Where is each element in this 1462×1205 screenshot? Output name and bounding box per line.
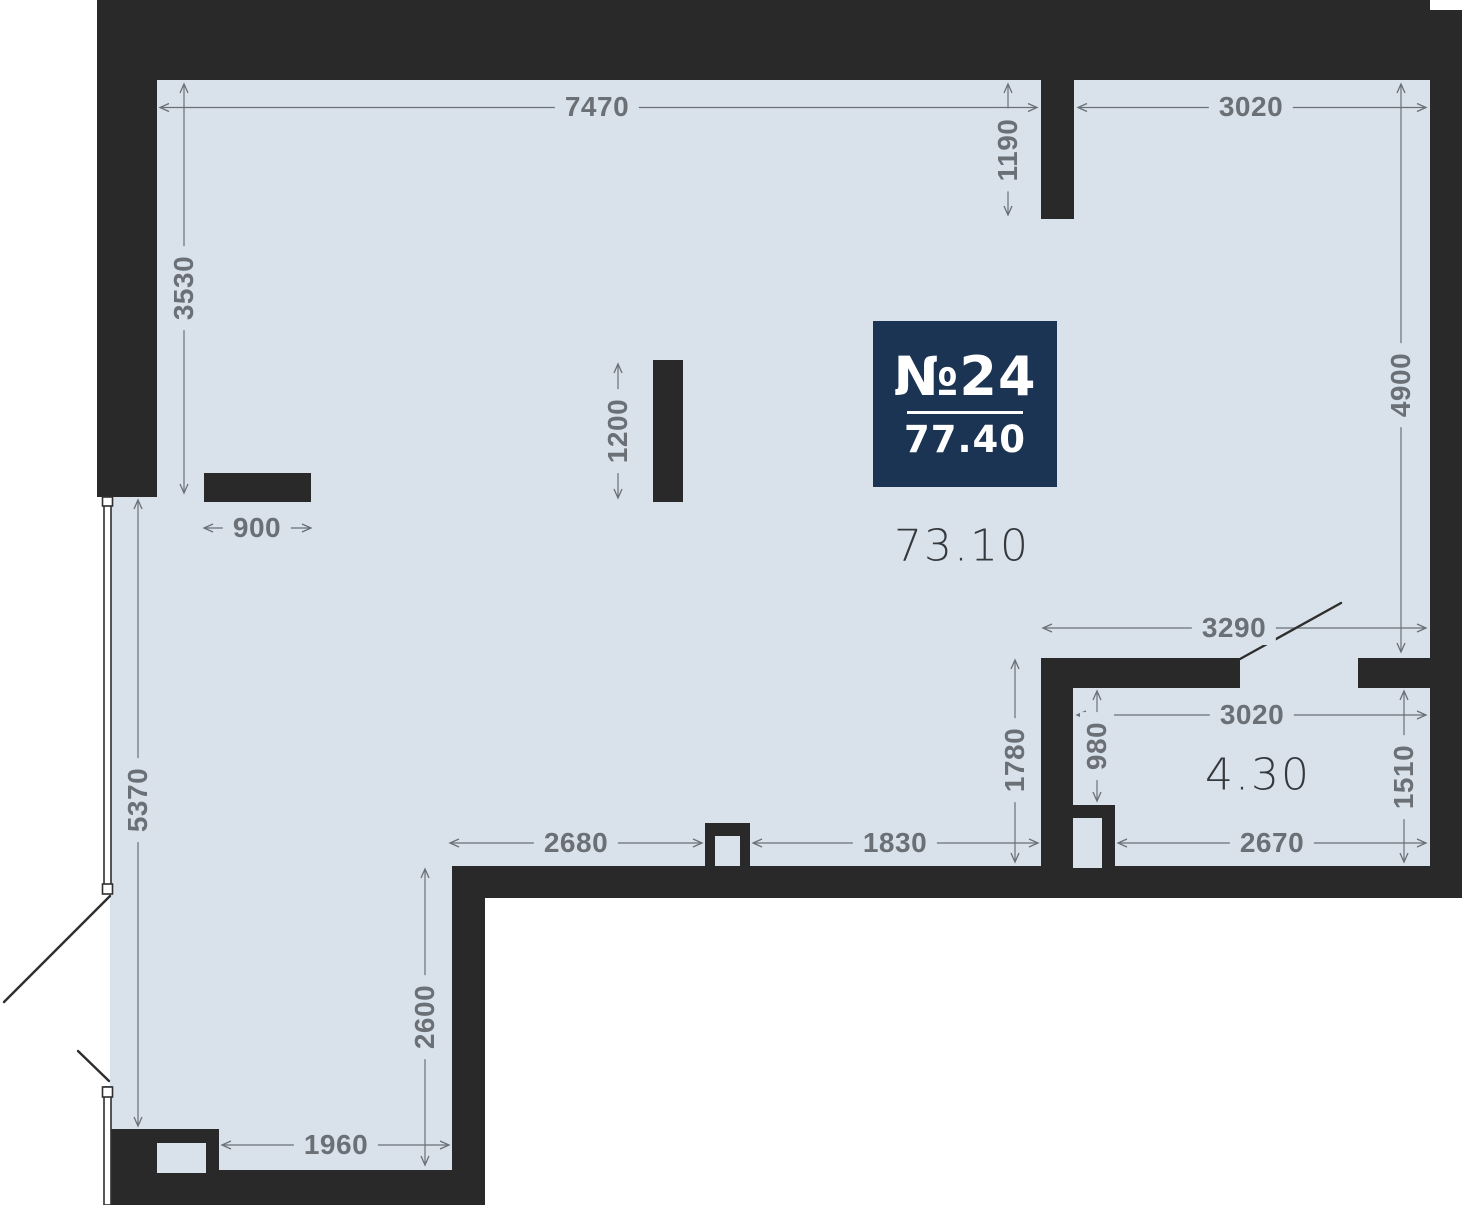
dim-leg-height: 2600 [408, 975, 442, 1059]
wall-bottom-main [452, 866, 1462, 898]
dim-left-upper-height: 3530 [167, 246, 201, 330]
wall-leg-right [452, 866, 485, 1205]
wall-leg-bottom [219, 1170, 485, 1205]
balcony-area-label: 4.30 [1205, 750, 1311, 801]
dim-partition-length: 1200 [601, 389, 635, 473]
dim-bottom-mid-width: 1830 [853, 826, 937, 860]
dim-balcony-right-height: 1510 [1387, 735, 1421, 819]
unit-badge: №24 77.40 [873, 321, 1057, 487]
dim-shelf-width: 900 [223, 511, 291, 545]
wall-right [1430, 0, 1462, 898]
unit-number-label: №24 [893, 350, 1036, 404]
floor-plan: 7470 3020 1190 3530 4900 1200 900 3290 1… [0, 0, 1462, 1205]
badge-divider [907, 411, 1023, 414]
wall-top-stub [1041, 80, 1074, 219]
wall-balcony-top-left [1041, 658, 1240, 688]
wall-left-upper [97, 0, 157, 497]
wall-balcony-top-right [1358, 658, 1430, 688]
dim-left-lower-height: 5370 [121, 758, 155, 842]
wall-balcony-vertical [1041, 658, 1073, 898]
wall-top-right-notch [1430, 0, 1462, 10]
dim-top-left-width: 7470 [555, 90, 639, 124]
dim-balcony-door-offset: 980 [1080, 712, 1114, 780]
dim-leg-bottom-width: 1960 [294, 1128, 378, 1162]
dim-bottom-left-width: 2680 [534, 826, 618, 860]
dim-right-height: 4900 [1384, 343, 1418, 427]
wall-partition [653, 360, 683, 502]
dim-balcony-width: 3020 [1210, 698, 1294, 732]
balcony-door-opening [1073, 818, 1102, 868]
bottom-left-window-opening [157, 1143, 206, 1173]
wall-top [97, 0, 1430, 80]
wall-shelf-stub [204, 473, 311, 502]
floor-main [157, 80, 1430, 866]
unit-total-area-label: 77.40 [904, 421, 1026, 458]
dim-top-right-width: 3020 [1209, 90, 1293, 124]
dim-balcony-bottom-width: 2670 [1230, 826, 1314, 860]
dim-niche-depth: 1190 [991, 109, 1025, 192]
main-room-area-label: 73.10 [894, 521, 1030, 572]
bottom-pier-opening [715, 836, 740, 866]
dim-hall-height: 1780 [998, 718, 1032, 802]
dim-opening-width: 3290 [1192, 611, 1276, 645]
